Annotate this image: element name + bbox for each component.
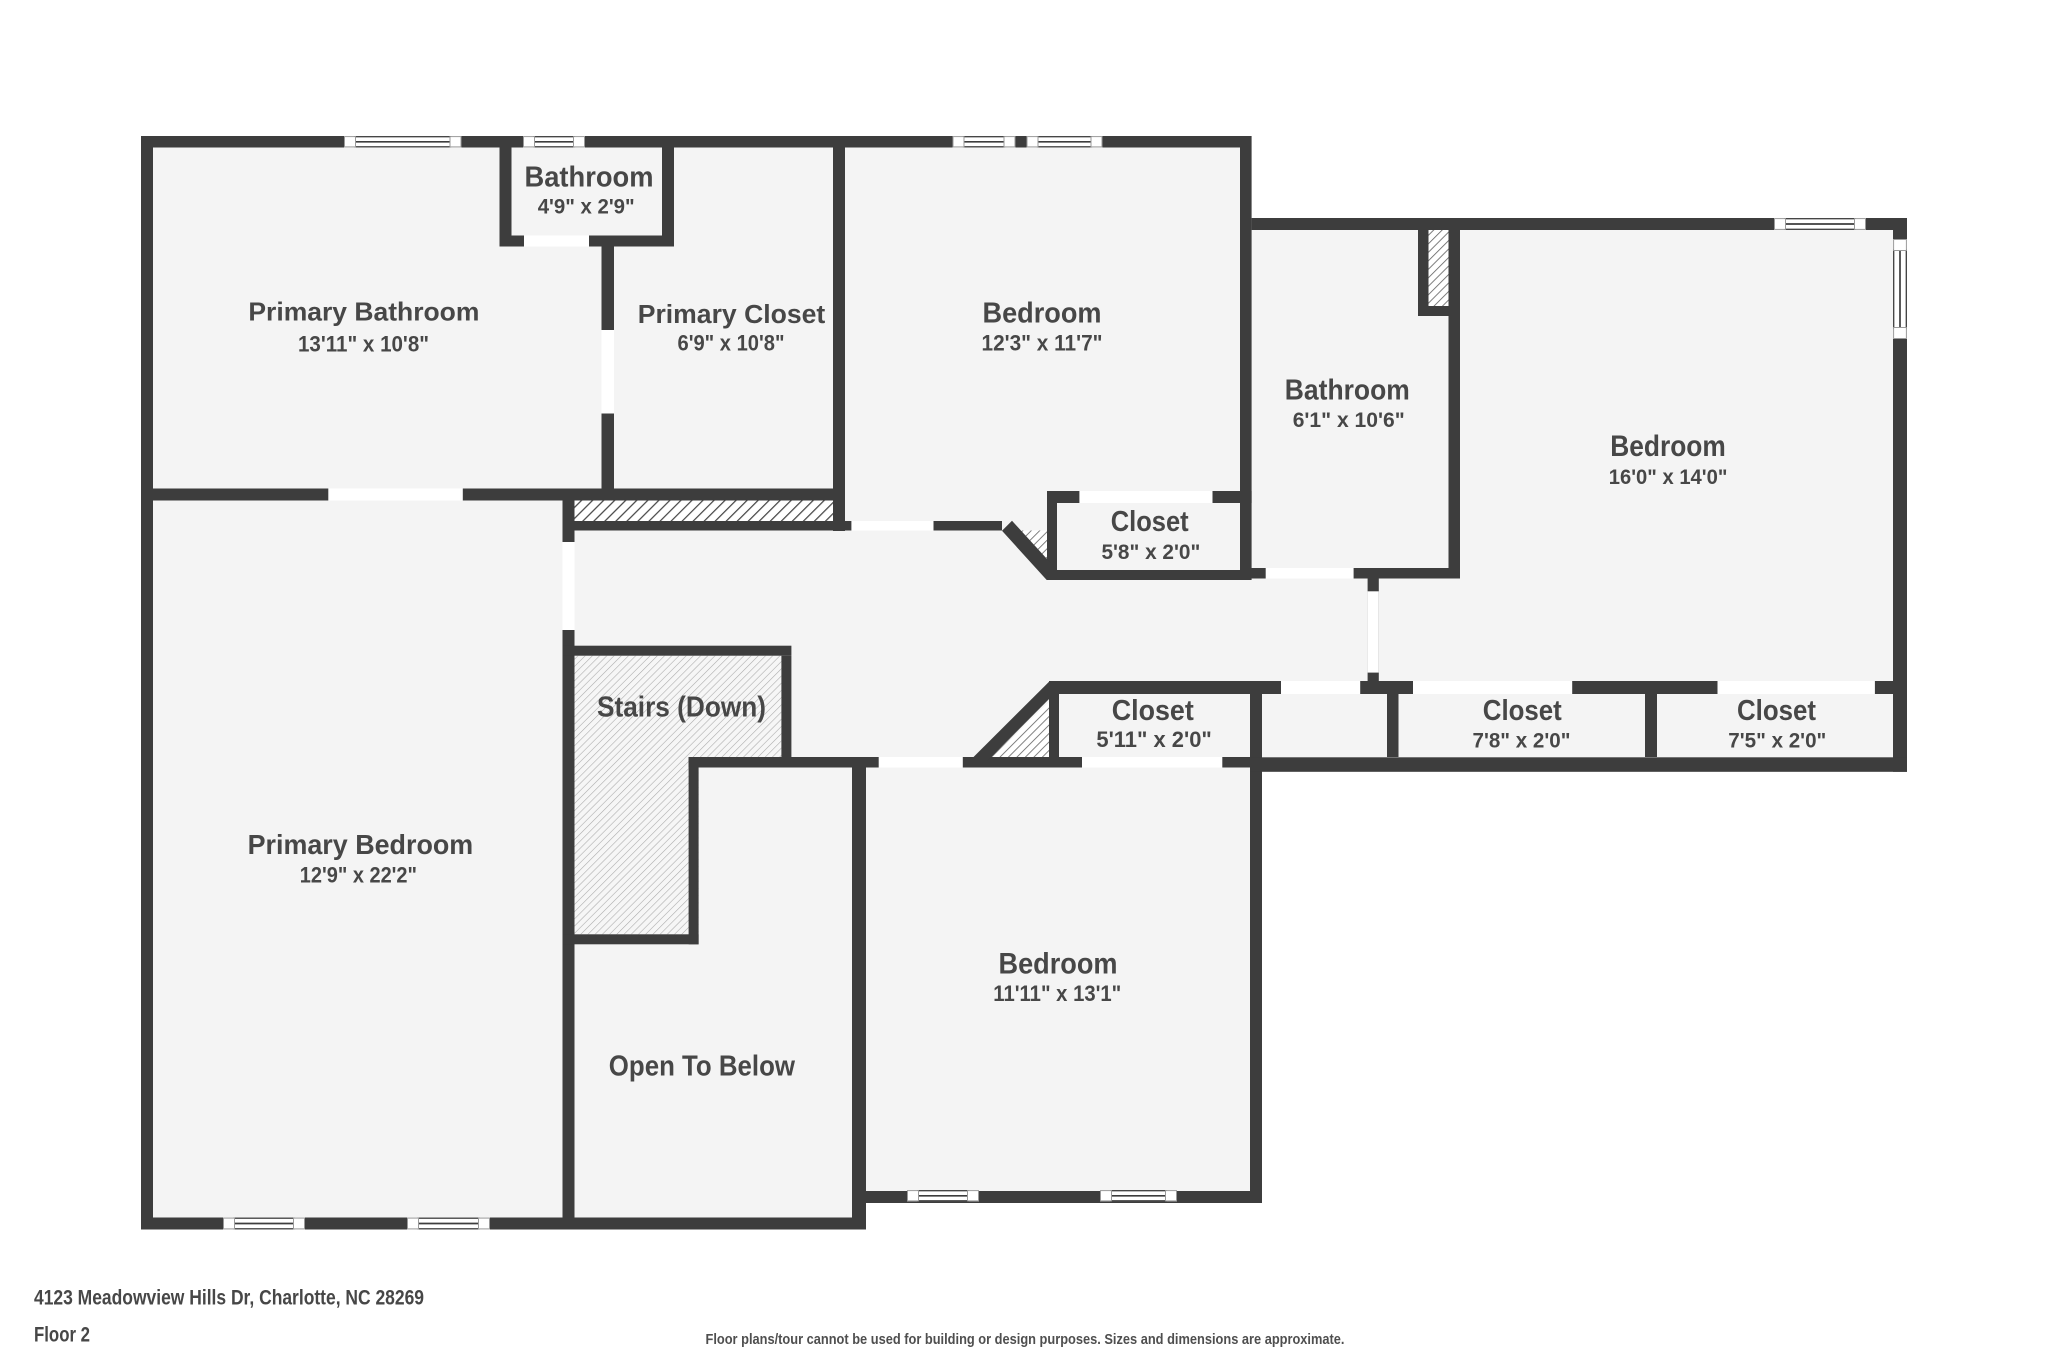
svg-text:5'8" x 2'0": 5'8" x 2'0" [1101,541,1200,564]
svg-text:6'9" x 10'8": 6'9" x 10'8" [678,331,785,356]
svg-text:Closet: Closet [1737,695,1816,727]
svg-text:Floor 2: Floor 2 [34,1323,90,1347]
svg-text:Primary Closet: Primary Closet [638,301,826,329]
svg-text:12'3" x 11'7": 12'3" x 11'7" [982,330,1103,355]
svg-text:6'1" x 10'6": 6'1" x 10'6" [1293,408,1405,432]
svg-text:Stairs (Down): Stairs (Down) [597,692,766,724]
svg-text:5'11" x 2'0": 5'11" x 2'0" [1096,727,1211,752]
svg-text:Floor plans/tour cannot be use: Floor plans/tour cannot be used for buil… [706,1331,1345,1348]
svg-text:Bathroom: Bathroom [525,162,654,194]
svg-text:Closet: Closet [1483,695,1562,727]
svg-text:Closet: Closet [1111,506,1189,538]
svg-text:Bedroom: Bedroom [999,947,1118,980]
svg-text:4123 Meadowview Hills Dr, Char: 4123 Meadowview Hills Dr, Charlotte, NC … [34,1286,424,1310]
svg-text:Bedroom: Bedroom [1610,430,1726,463]
svg-text:4'9" x 2'9": 4'9" x 2'9" [538,194,635,218]
svg-text:12'9" x 22'2": 12'9" x 22'2" [300,862,417,887]
svg-text:Primary Bedroom: Primary Bedroom [248,829,474,860]
svg-text:Open To Below: Open To Below [609,1051,796,1083]
svg-text:Bathroom: Bathroom [1285,375,1410,407]
svg-text:Primary Bathroom: Primary Bathroom [248,297,479,327]
svg-text:7'5" x 2'0": 7'5" x 2'0" [1728,729,1826,753]
svg-text:7'8" x 2'0": 7'8" x 2'0" [1473,729,1571,753]
svg-text:Closet: Closet [1112,695,1194,727]
svg-text:16'0" x 14'0": 16'0" x 14'0" [1609,466,1728,489]
svg-text:Bedroom: Bedroom [983,298,1102,330]
svg-text:11'11" x 13'1": 11'11" x 13'1" [993,981,1121,1006]
svg-text:13'11" x 10'8": 13'11" x 10'8" [298,331,429,356]
